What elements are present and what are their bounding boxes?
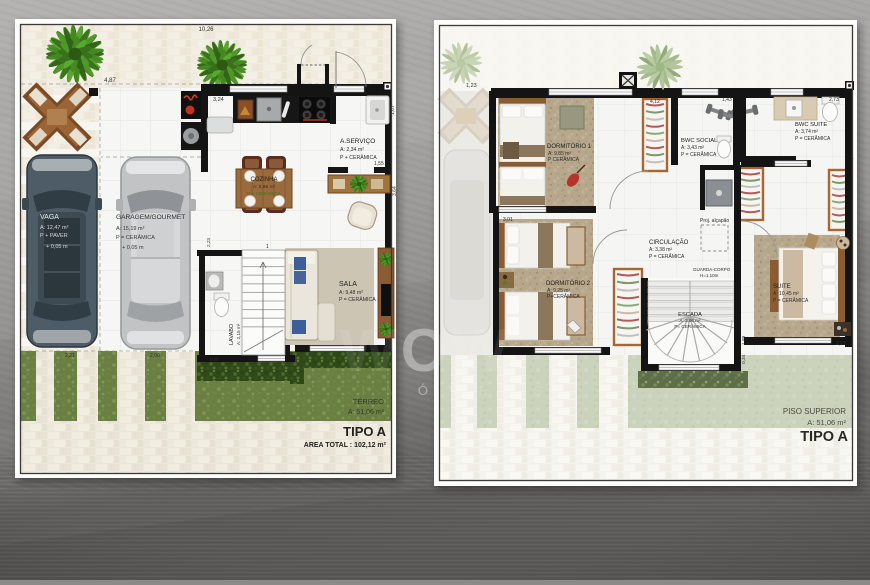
svg-text:A: 3,74 m²: A: 3,74 m² (795, 129, 818, 135)
svg-text:TIPO A: TIPO A (800, 429, 848, 445)
svg-text:2,73: 2,73 (829, 97, 839, 103)
svg-text:2,00: 2,00 (150, 353, 160, 359)
svg-text:GARAGEM/GOURMET: GARAGEM/GOURMET (116, 214, 185, 221)
svg-text:BWC SOCIAL: BWC SOCIAL (681, 138, 718, 144)
svg-text:A: 3,38 m²: A: 3,38 m² (649, 247, 672, 253)
svg-text:1,55: 1,55 (374, 161, 384, 167)
svg-text:A: 3,43 m²: A: 3,43 m² (681, 145, 704, 151)
svg-text:CIRCULAÇÃO: CIRCULAÇÃO (649, 239, 689, 246)
svg-text:TIPO A: TIPO A (343, 424, 386, 439)
svg-text:A: 51,06 m²: A: 51,06 m² (807, 418, 846, 427)
svg-text:PISO SUPERIOR: PISO SUPERIOR (783, 407, 846, 416)
svg-text:4,12: 4,12 (650, 99, 660, 105)
svg-text:DORMITÓRIO 1: DORMITÓRIO 1 (547, 143, 592, 150)
svg-text:A: 5,96 m²: A: 5,96 m² (253, 184, 276, 190)
svg-text:P= CERÂMICA: P= CERÂMICA (674, 323, 706, 329)
svg-text:10,26: 10,26 (198, 27, 214, 33)
svg-text:3,01: 3,01 (503, 217, 513, 223)
svg-text:1,23: 1,23 (466, 83, 477, 89)
svg-text:+ 0,05 m: + 0,05 m (46, 244, 68, 250)
svg-text:3,24: 3,24 (213, 97, 224, 103)
svg-text:VAGA: VAGA (40, 214, 59, 221)
svg-text:SUITE: SUITE (773, 284, 791, 290)
svg-text:2,21: 2,21 (65, 353, 75, 359)
svg-text:P = CERÂMICA: P = CERÂMICA (116, 234, 155, 241)
svg-text:+ 0,05 m: + 0,05 m (122, 245, 144, 251)
svg-text:A: 15,19 m²: A: 15,19 m² (116, 226, 145, 232)
svg-text:WOW: WOW (340, 317, 512, 384)
svg-text:H=1,10m: H=1,10m (700, 273, 719, 278)
svg-text:4,87: 4,87 (104, 78, 116, 84)
svg-text:P = CERÂMICA: P = CERÂMICA (795, 135, 831, 142)
svg-text:0,34: 0,34 (741, 354, 747, 364)
svg-text:Proj. alçapão: Proj. alçapão (700, 218, 729, 224)
svg-text:P = CERÂMICA: P = CERÂMICA (649, 253, 685, 260)
svg-text:P = CERÂMICA: P = CERÂMICA (773, 297, 809, 304)
svg-text:A.SERVIÇO: A.SERVIÇO (340, 138, 375, 145)
svg-text:2,23: 2,23 (206, 238, 211, 247)
svg-text:BWC SUITE: BWC SUITE (795, 122, 827, 128)
svg-text:GUARDA-CORPO: GUARDA-CORPO (693, 267, 731, 272)
svg-text:P CERÂMICA: P CERÂMICA (548, 156, 580, 163)
svg-text:SALA: SALA (339, 281, 357, 288)
svg-text:3,64: 3,64 (392, 186, 398, 196)
svg-text:A: 10,45 m²: A: 10,45 m² (773, 291, 799, 297)
svg-text:A: 2,34 m²: A: 2,34 m² (340, 147, 364, 153)
svg-text:P + CERÂMICA: P + CERÂMICA (340, 154, 377, 161)
svg-text:LAVABO: LAVABO (229, 323, 235, 345)
svg-text:AREA TOTAL : 102,12 m²: AREA TOTAL : 102,12 m² (304, 442, 387, 449)
svg-text:A: 2,15 m²: A: 2,15 m² (236, 323, 241, 345)
svg-text:2,72: 2,72 (836, 341, 846, 347)
svg-text:TÉRREO: TÉRREO (353, 397, 384, 406)
svg-text:P = CERÂMICA: P = CERÂMICA (681, 151, 717, 158)
svg-text:A: 12,47 m²: A: 12,47 m² (40, 225, 69, 231)
svg-text:P + PAVER: P + PAVER (40, 233, 68, 239)
svg-text:P+CERÂMICA: P+CERÂMICA (547, 293, 580, 300)
svg-text:P = CERÂMICA: P = CERÂMICA (339, 296, 376, 303)
svg-text:COZINHA: COZINHA (251, 177, 278, 183)
svg-text:A: 3,96 m²: A: 3,96 m² (679, 318, 701, 323)
svg-text:1,43: 1,43 (722, 97, 732, 103)
svg-text:IMÓVEIS: IMÓVEIS (361, 383, 562, 398)
svg-text:DORMITÓRIO 2: DORMITÓRIO 2 (546, 280, 591, 287)
svg-text:A: 51,06 m²: A: 51,06 m² (348, 409, 385, 416)
svg-text:1: 1 (266, 244, 269, 250)
svg-text:0,97: 0,97 (210, 357, 220, 363)
svg-text:A: 9,48 m²: A: 9,48 m² (339, 290, 363, 296)
svg-text:P + CERÂMICA: P + CERÂMICA (247, 190, 282, 197)
